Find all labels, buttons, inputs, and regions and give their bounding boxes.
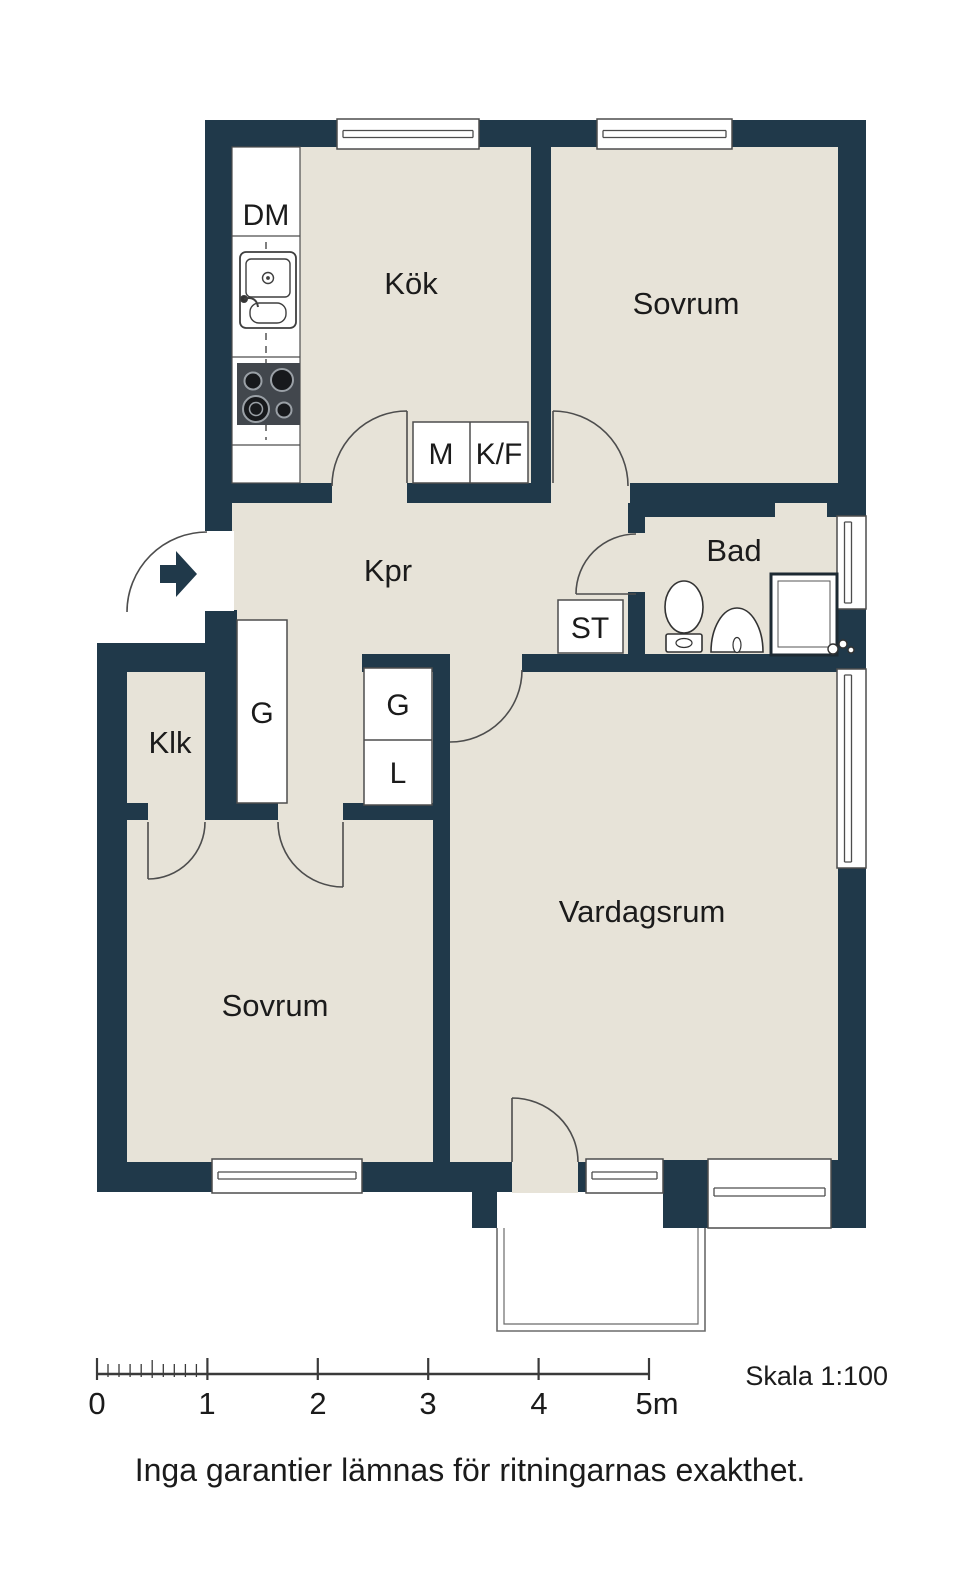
label-hallway: Kpr (364, 553, 412, 588)
window-living-bottom-deep (708, 1159, 831, 1228)
wall-kitchen-bedroom-divider (531, 147, 551, 503)
scale-tick-1: 1 (198, 1386, 215, 1421)
wall-balcony-stub (472, 1190, 497, 1228)
wall-bath-corner (827, 503, 838, 517)
wall-bottom-1 (97, 1162, 213, 1192)
wall-closet-right (205, 610, 237, 803)
label-dishwasher: DM (243, 199, 290, 232)
toilet (665, 581, 703, 652)
label-cleaning-cabinet: ST (571, 612, 609, 645)
label-wardrobe-g: G (386, 689, 409, 722)
label-wardrobe-l: L (390, 757, 407, 790)
scale-tick-3: 3 (419, 1386, 436, 1421)
scale-tick-5: 5m (635, 1386, 678, 1421)
scale-tick-0: 0 (88, 1386, 105, 1421)
scale-tick-4: 4 (530, 1386, 547, 1421)
label-bedroom-bottom: Sovrum (222, 988, 329, 1023)
wall-hall-south-right (522, 654, 838, 672)
wall-bedroom-living-divider (433, 654, 450, 1162)
entrance-arrow-icon (160, 551, 197, 597)
wall-below-closet-mid (205, 803, 278, 820)
floor-plan-page: DM Kök Sovrum M K/F Kpr Bad ST G Klk G L… (0, 0, 960, 1594)
stove (237, 363, 300, 425)
window-bathroom-right (837, 516, 866, 609)
wall-bedroom-south (630, 483, 775, 517)
disclaimer-text: Inga garantier lämnas för ritningarnas e… (135, 1452, 806, 1488)
wall-left-lower (97, 643, 127, 1192)
window-living-bottom-small (586, 1159, 663, 1193)
label-living-room: Vardagsrum (559, 894, 726, 929)
label-closet-room: Klk (148, 725, 192, 760)
wall-bottom-right-corner (831, 1160, 866, 1228)
window-living-right (837, 669, 866, 868)
label-wardrobe-hall: G (250, 697, 273, 730)
kitchen-counter (232, 147, 300, 483)
label-fridge-freezer: K/F (476, 438, 523, 471)
scale-major-ticks (97, 1358, 649, 1380)
scale-tick-2: 2 (309, 1386, 326, 1421)
label-microwave: M (429, 438, 454, 471)
scale-bar: 0 1 2 3 4 5m Skala 1:100 (88, 1358, 888, 1421)
entrance-opening (203, 531, 234, 611)
window-kitchen (337, 119, 479, 149)
label-bedroom-top: Sovrum (633, 286, 740, 321)
wall-below-closet-left (127, 803, 148, 820)
scale-caption: Skala 1:100 (745, 1361, 888, 1391)
balcony (497, 1228, 705, 1331)
wall-top (205, 120, 866, 147)
wall-bath-west-top (628, 503, 645, 533)
label-kitchen: Kök (384, 266, 438, 301)
floor-plan-svg: DM Kök Sovrum M K/F Kpr Bad ST G Klk G L… (0, 0, 960, 1594)
balcony-door-threshold (512, 1157, 578, 1193)
wall-bottom-pillar (663, 1160, 708, 1228)
window-bedroom-bottom (212, 1159, 362, 1193)
label-bathroom: Bad (706, 533, 761, 568)
scale-minor-ticks (108, 1360, 196, 1378)
wall-kitchen-south-left (205, 483, 332, 503)
kitchen-sink (240, 252, 296, 328)
wall-bottom-2 (361, 1162, 512, 1192)
window-bedroom-top (597, 119, 732, 149)
wall-kitchen-south-right (407, 483, 551, 503)
wall-bedroom-south-2 (775, 483, 866, 503)
